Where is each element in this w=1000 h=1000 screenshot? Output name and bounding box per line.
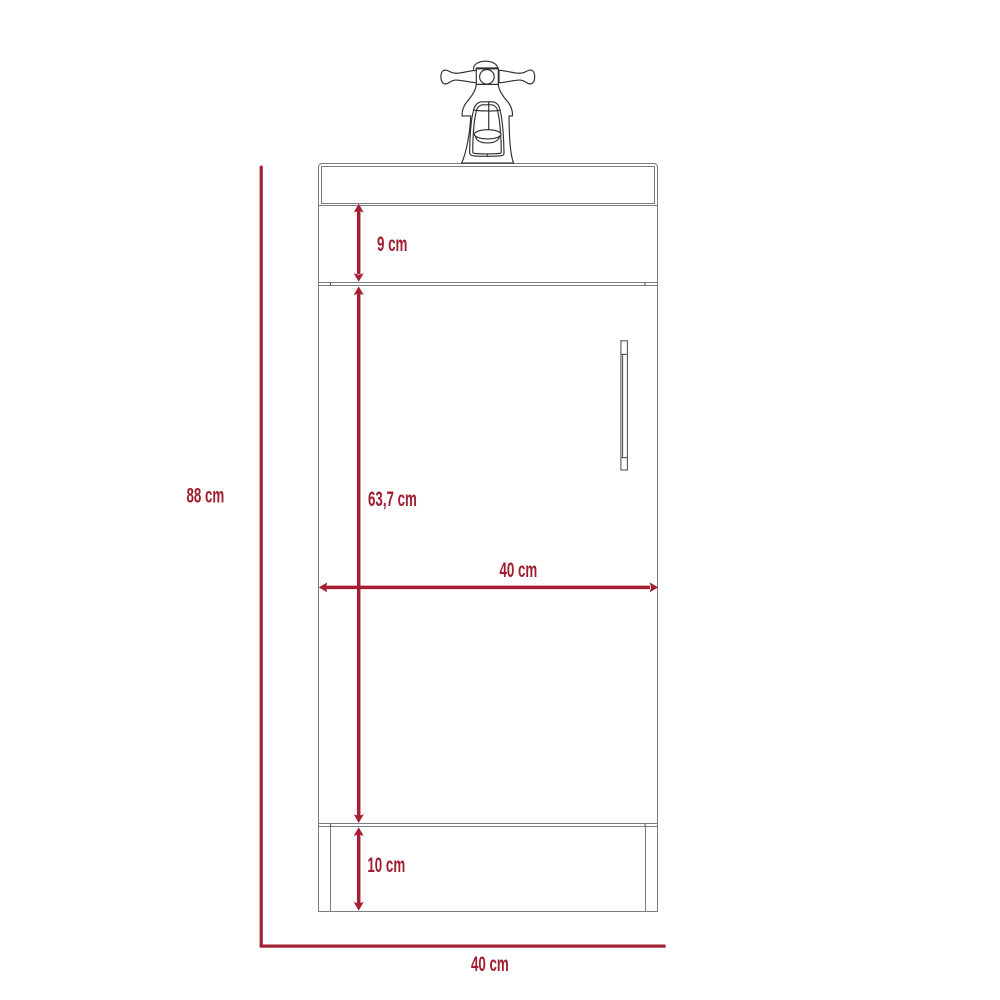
svg-text:40 cm: 40 cm	[471, 952, 509, 976]
svg-text:10 cm: 10 cm	[367, 853, 405, 877]
svg-text:63,7 cm: 63,7 cm	[368, 487, 417, 511]
svg-text:9 cm: 9 cm	[377, 232, 407, 256]
svg-text:88 cm: 88 cm	[187, 483, 225, 507]
svg-text:40 cm: 40 cm	[500, 558, 538, 582]
